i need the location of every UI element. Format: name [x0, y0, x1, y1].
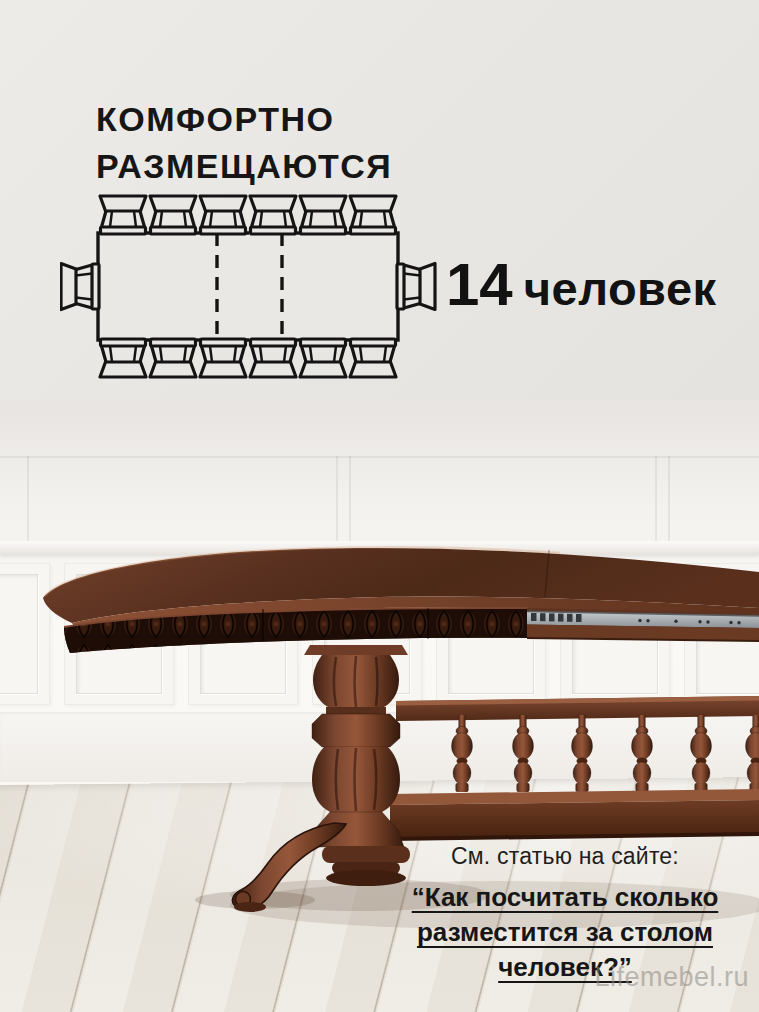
diagram-table-top-view — [98, 233, 398, 340]
chair-icon — [150, 196, 196, 234]
table-stretcher-railing — [390, 696, 759, 841]
chair-icon — [61, 264, 99, 310]
chair-icon — [350, 196, 396, 234]
extension-slide-rail — [527, 608, 759, 641]
capacity-unit: человек — [524, 261, 717, 316]
capacity-number: 14 — [446, 250, 513, 319]
seating-diagram — [60, 193, 440, 379]
chair-icon — [397, 264, 435, 310]
chair-icon — [200, 339, 246, 377]
chair-icon — [200, 196, 246, 234]
chair-icon — [350, 339, 396, 377]
wall-molding — [668, 456, 670, 541]
chair-icon — [100, 339, 146, 377]
wall-molding — [655, 456, 657, 541]
chair-icon — [250, 196, 296, 234]
capacity-label: 14 человек — [446, 250, 717, 319]
wall-molding — [349, 456, 351, 541]
balusters — [452, 715, 759, 792]
article-title-line[interactable]: разместится за столом — [417, 917, 713, 947]
article-title-line[interactable]: “Как посчитать сколько — [412, 882, 719, 912]
watermark-label: Lifemebel.ru — [594, 962, 749, 993]
chair-icon — [300, 196, 346, 234]
article-lead: См. статью на сайте: — [370, 843, 759, 870]
chair-icon — [300, 339, 346, 377]
title-line-1: КОМФОРТНО — [96, 96, 392, 143]
chair-icon — [150, 339, 196, 377]
wall-molding — [0, 456, 759, 458]
chair-icon — [250, 339, 296, 377]
chair-icon — [100, 196, 146, 234]
wall-molding — [27, 456, 29, 541]
infographic-poster: КОМФОРТНО РАЗМЕЩАЮТСЯ — [0, 0, 759, 1012]
title-line-2: РАЗМЕЩАЮТСЯ — [96, 143, 392, 190]
poster-title: КОМФОРТНО РАЗМЕЩАЮТСЯ — [96, 96, 392, 190]
product-photo: См. статью на сайте: “Как посчитать скол… — [0, 400, 759, 1012]
wall-molding — [336, 456, 338, 541]
